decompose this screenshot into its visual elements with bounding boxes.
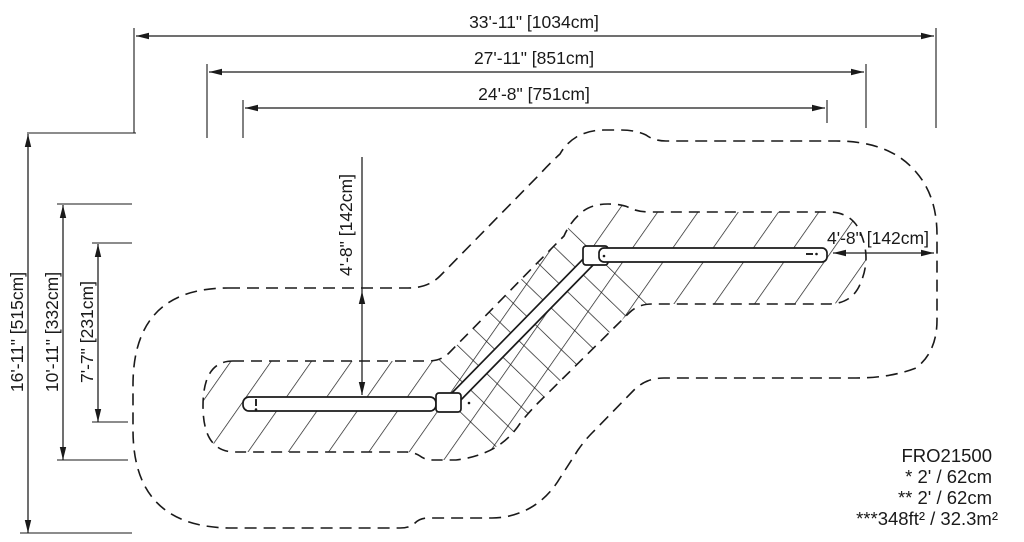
- dim-label-clearance-vertical: 4'-8" [142cm]: [336, 174, 356, 276]
- connector-dot-upper: [603, 255, 606, 258]
- dim-label-zone-height: 10'-11" [332cm]: [42, 272, 62, 392]
- beam-upper: [599, 248, 827, 262]
- connector-dot-lower: [468, 402, 471, 405]
- beam-lower-connector: [436, 393, 461, 412]
- note-line-2: ** 2' / 62cm: [898, 487, 992, 508]
- dim-label-clearance-horizontal: 4'-8" [142cm]: [827, 228, 929, 248]
- note-line-1: * 2' / 62cm: [905, 466, 992, 487]
- product-code: FRO21500: [902, 445, 993, 466]
- dim-label-structure-height: 7'-7" [231cm]: [77, 281, 97, 383]
- dim-label-zone-width: 27'-11" [851cm]: [474, 48, 594, 68]
- hatch-fill: [190, 190, 880, 475]
- plan-drawing: 33'-11" [1034cm] 27'-11" [851cm] 24'-8" …: [0, 0, 1024, 542]
- beam-lower: [243, 397, 436, 411]
- notes-block: FRO21500 * 2' / 62cm ** 2' / 62cm ***348…: [856, 445, 998, 529]
- dim-label-overall-width: 33'-11" [1034cm]: [469, 12, 599, 32]
- dim-label-structure-width: 24'-8" [751cm]: [478, 84, 590, 104]
- beam-lower-mark-dot: [255, 408, 258, 411]
- note-line-3: ***348ft² / 32.3m²: [856, 508, 998, 529]
- dim-label-overall-height: 16'-11" [515cm]: [7, 272, 27, 392]
- beam-upper-mark-dot: [815, 253, 818, 256]
- technical-plan-page: 33'-11" [1034cm] 27'-11" [851cm] 24'-8" …: [0, 0, 1024, 542]
